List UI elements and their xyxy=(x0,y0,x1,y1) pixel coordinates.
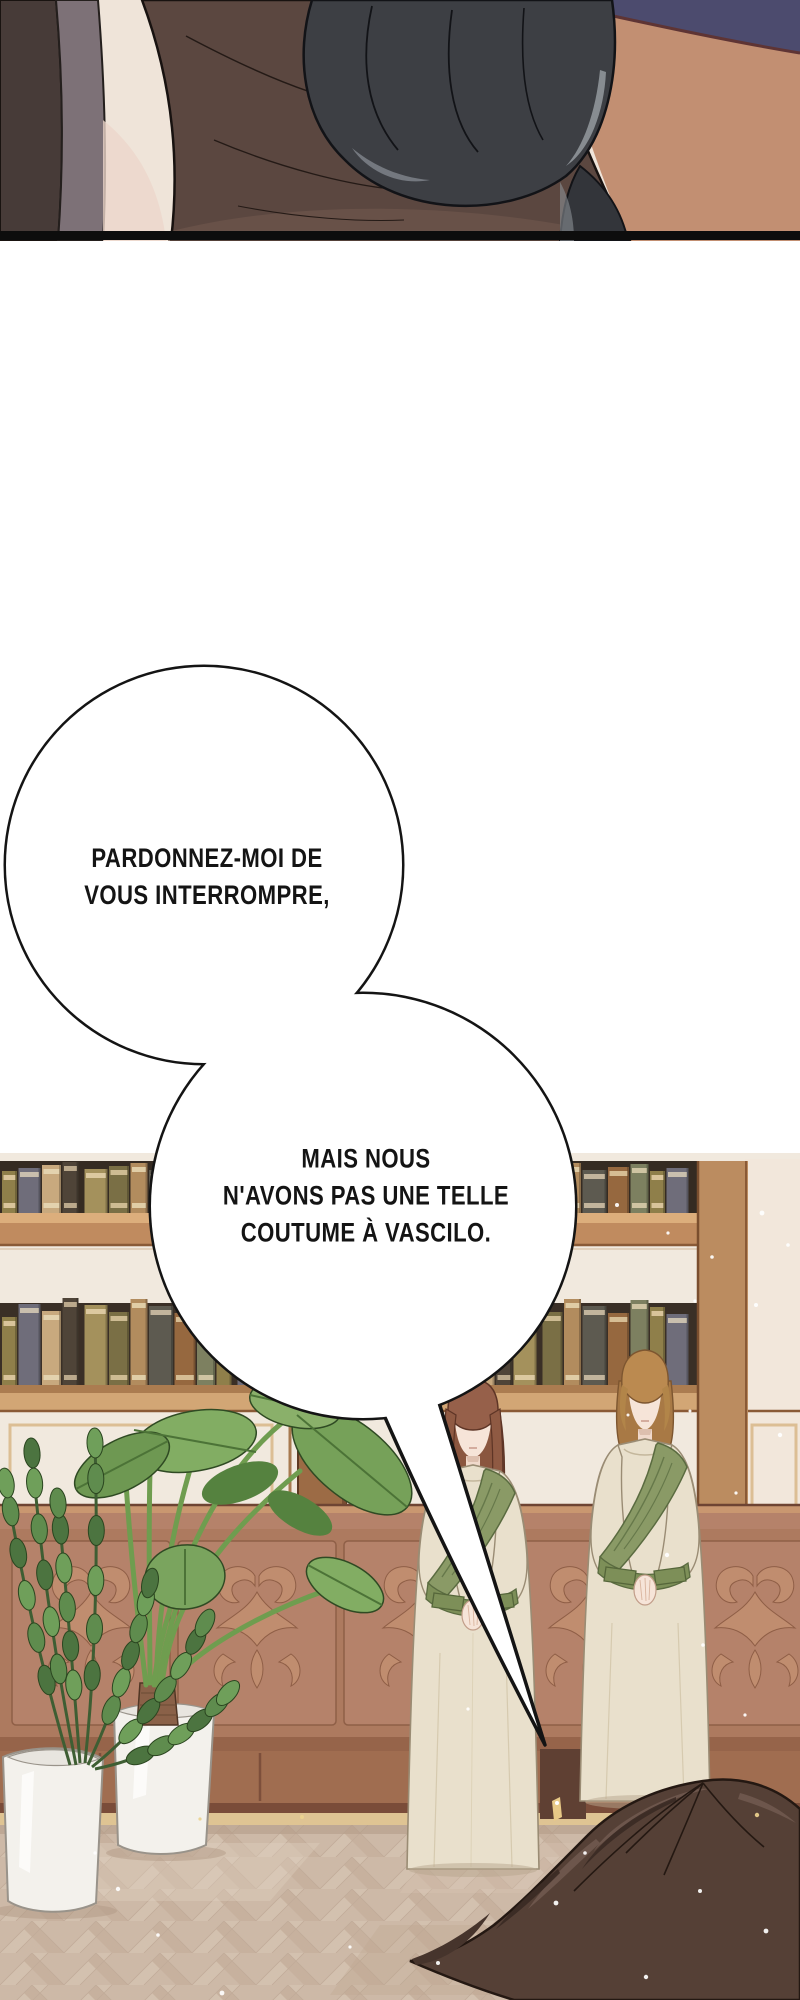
gap-shadow xyxy=(540,1749,586,1821)
shoulder-strap xyxy=(0,0,105,241)
top-panel-illustration xyxy=(0,0,800,241)
bubble-1-fill xyxy=(6,667,402,1063)
speech-bubble-1-text: PARDONNEZ-MOI DE VOUS INTERROMPRE, xyxy=(84,840,330,914)
panel-border xyxy=(0,231,800,240)
shelf-pillar xyxy=(698,1161,748,1513)
comic-page: PARDONNEZ-MOI DE VOUS INTERROMPRE, MAIS … xyxy=(0,0,800,2000)
books-row-2 xyxy=(2,1298,689,1385)
speech-bubble-1 xyxy=(6,667,402,1063)
plant-pot-left xyxy=(3,1748,103,1912)
library-scene xyxy=(0,1153,800,2000)
